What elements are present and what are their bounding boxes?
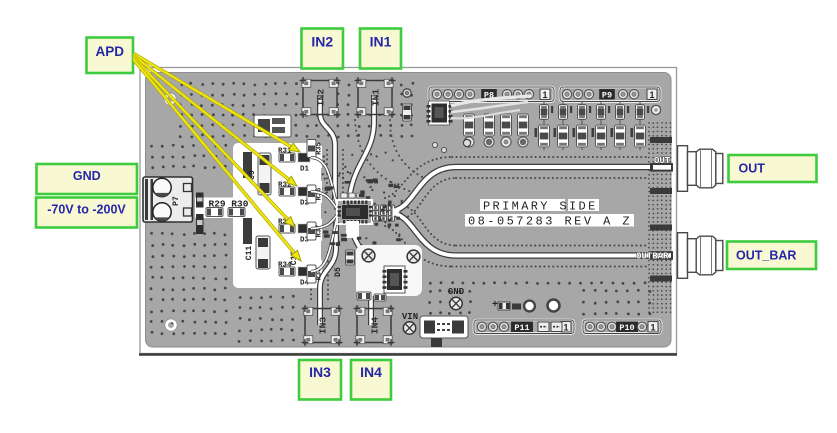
svg-text:P10: P10 bbox=[619, 323, 634, 333]
svg-text:OUT_BAR: OUT_BAR bbox=[736, 249, 796, 263]
svg-text:1: 1 bbox=[650, 322, 655, 332]
svg-text:IN1: IN1 bbox=[370, 89, 381, 106]
svg-text:IN4: IN4 bbox=[360, 364, 382, 380]
svg-text:IN3: IN3 bbox=[309, 364, 331, 380]
svg-text:OUT: OUT bbox=[739, 162, 766, 176]
svg-text:C11: C11 bbox=[245, 246, 254, 261]
svg-text:P11: P11 bbox=[514, 323, 529, 333]
svg-text:IN4: IN4 bbox=[369, 317, 380, 334]
svg-text:1: 1 bbox=[542, 90, 547, 100]
svg-text:PRIMARY SIDE: PRIMARY SIDE bbox=[483, 199, 598, 213]
svg-text:VIN: VIN bbox=[402, 312, 418, 322]
svg-text:IN1: IN1 bbox=[370, 34, 392, 50]
svg-text:IN2: IN2 bbox=[315, 89, 326, 106]
svg-text:1: 1 bbox=[649, 90, 654, 100]
svg-text:D5: D5 bbox=[334, 267, 343, 277]
svg-text:IN3: IN3 bbox=[317, 317, 328, 334]
svg-text:P9: P9 bbox=[602, 91, 612, 101]
svg-text:GND: GND bbox=[73, 169, 101, 183]
svg-text:APD: APD bbox=[95, 44, 124, 59]
svg-text:IN2: IN2 bbox=[311, 34, 333, 50]
svg-text:08-057283 REV A Z: 08-057283 REV A Z bbox=[468, 215, 632, 229]
svg-text:OUT: OUT bbox=[654, 156, 671, 166]
svg-text:D1: D1 bbox=[300, 166, 310, 174]
svg-text:+: + bbox=[492, 299, 498, 310]
svg-text:1: 1 bbox=[563, 322, 568, 332]
svg-text:R35: R35 bbox=[316, 142, 324, 155]
svg-text:OUTBAR: OUTBAR bbox=[636, 252, 669, 262]
svg-text:-70V to -200V: -70V to -200V bbox=[47, 203, 126, 217]
svg-text:GND: GND bbox=[448, 287, 465, 297]
svg-text:P7: P7 bbox=[172, 196, 181, 206]
